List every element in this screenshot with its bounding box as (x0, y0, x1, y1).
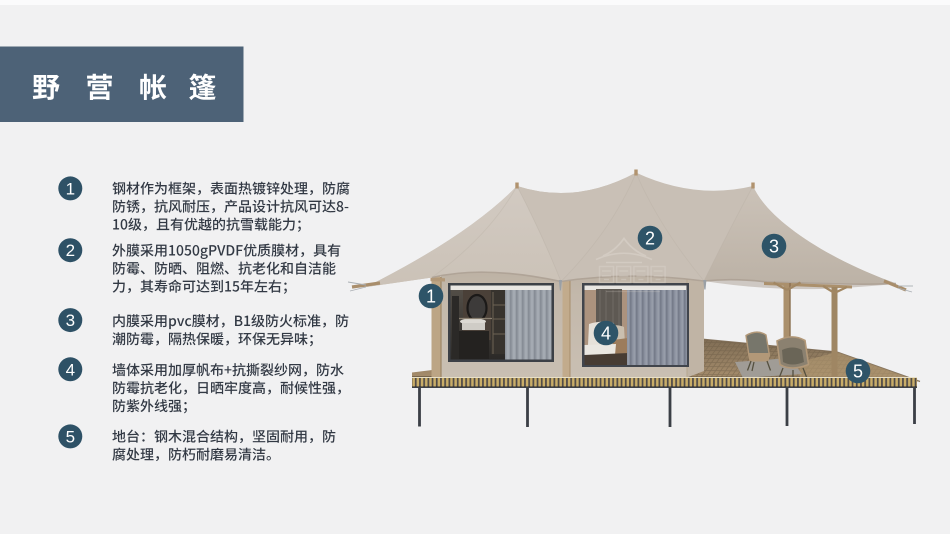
svg-text:4: 4 (601, 323, 611, 343)
svg-text:2: 2 (645, 228, 655, 248)
svg-text:3: 3 (66, 311, 75, 330)
svg-text:1: 1 (426, 286, 436, 306)
svg-text:2: 2 (66, 241, 75, 260)
svg-text:4: 4 (66, 360, 75, 379)
svg-text:3: 3 (769, 236, 779, 256)
svg-text:5: 5 (853, 361, 863, 381)
svg-text:1: 1 (66, 179, 75, 198)
svg-text:5: 5 (66, 427, 75, 446)
